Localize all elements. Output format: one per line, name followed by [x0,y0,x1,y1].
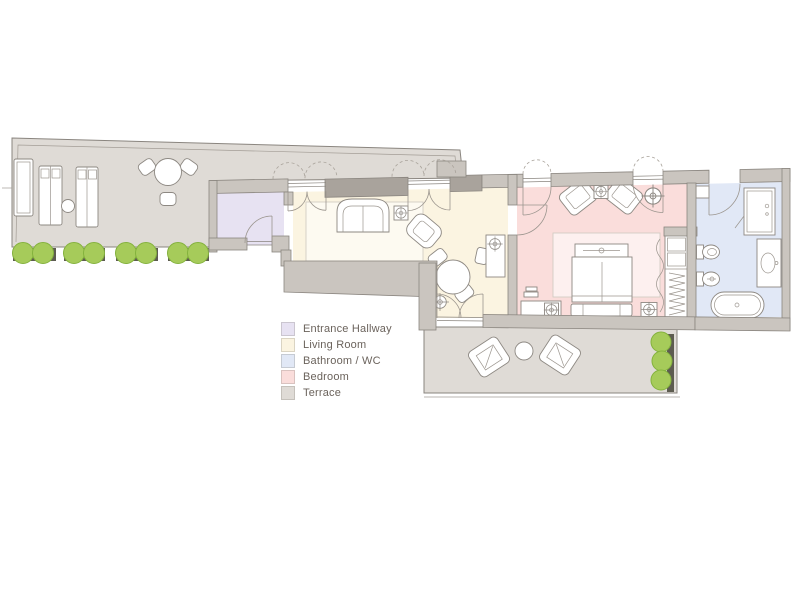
bush [13,243,34,264]
bush [651,370,671,390]
side-table-light [394,206,408,220]
bed [572,244,632,302]
bush [652,351,672,371]
wall-pier-dark [325,177,408,197]
terrace-side-table [515,342,533,360]
bush [64,243,85,264]
sun-lounger [76,167,98,227]
sun-lounger [39,166,62,225]
round-table [155,159,182,186]
wall-bottom-bathroom [695,317,790,331]
legend-row: Terrace [281,385,392,401]
bush [116,243,137,264]
vanity-sink [757,239,781,287]
side-table [62,200,75,213]
wall-bedroom-bathroom [687,183,696,318]
sun-lounger [14,159,33,216]
bidet [697,272,720,286]
bush [651,332,671,352]
legend: Entrance Hallway Living Room Bathroom / … [281,321,392,401]
legend-row: Bedroom [281,369,392,385]
sofa [337,199,389,232]
lamp-table [594,184,608,198]
floor-plan-page: Entrance Hallway Living Room Bathroom / … [0,0,800,600]
wall-column [419,263,436,330]
bush [136,243,157,264]
legend-swatch-bedroom [281,370,295,384]
wall-top-bedroom [551,172,633,187]
bush [33,243,54,264]
dining-table [436,260,470,294]
bush [188,243,209,264]
wall-hallway-bottom [209,238,247,250]
wall-console-bumpout [284,261,437,297]
wall-top-bedroom-right [663,170,709,184]
legend-swatch-terrace [281,386,295,400]
floor-plan-svg [0,0,800,600]
wall-top-hallway [210,179,288,194]
book-stack [526,287,537,291]
wall-pier-dark [450,175,482,192]
legend-label: Living Room [303,339,366,351]
legend-row: Living Room [281,337,392,353]
legend-label: Entrance Hallway [303,323,392,335]
legend-label: Bathroom / WC [303,355,381,367]
legend-swatch-living-room [281,338,295,352]
wall-living-bedroom-bottom [508,235,517,318]
legend-swatch-entrance-hallway [281,322,295,336]
bush [84,243,105,264]
wall-bottom-bedroom [483,315,695,330]
bed-bench [571,304,632,316]
legend-row: Entrance Hallway [281,321,392,337]
wall-stub [284,192,293,205]
bush [168,243,189,264]
nightstand-light [641,302,657,317]
legend-label: Terrace [303,387,341,399]
wall-niche [696,186,709,198]
wall-living-bedroom-top [508,175,517,206]
book-stack [524,292,538,297]
legend-swatch-bathroom-wc [281,354,295,368]
bathtub [711,292,764,318]
wall-corner-block [437,161,466,177]
terrace-hedge-column [651,332,674,392]
legend-row: Bathroom / WC [281,353,392,369]
wall-bathroom-right [782,169,790,331]
legend-label: Bedroom [303,371,349,383]
toilet [697,245,720,259]
